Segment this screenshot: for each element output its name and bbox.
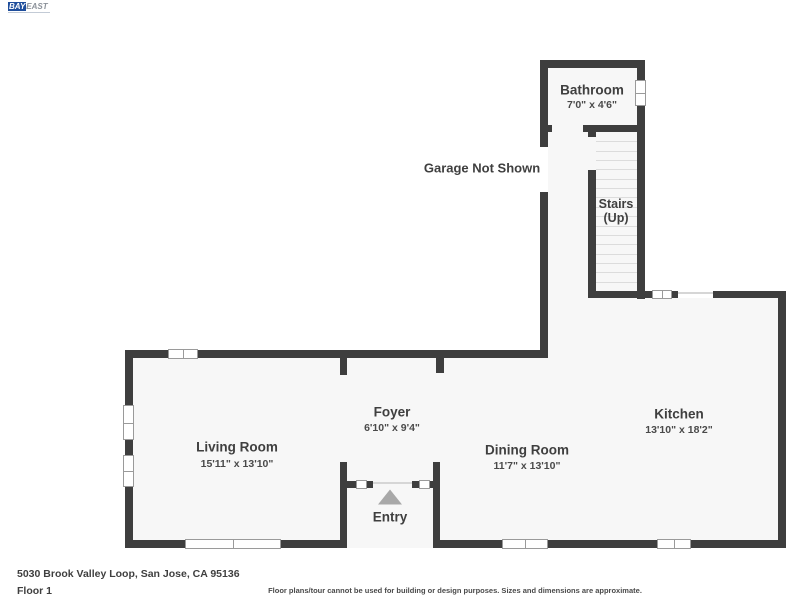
dining-south-window: [502, 539, 548, 549]
main-bottom-wall-right: [433, 540, 786, 548]
foyer-dims: 6'10" x 9'4": [364, 422, 420, 434]
kitchen-label: Kitchen: [654, 407, 704, 422]
bathroom-dims: 7'0" x 4'6": [567, 99, 617, 111]
foyer-west-wall-lower: [340, 462, 347, 548]
top-wall-window: [168, 349, 198, 359]
bathroom-top-wall: [540, 60, 645, 68]
kitchen-dims: 13'10" x 18'2": [645, 424, 713, 436]
foyer-west-wall-upper: [340, 358, 347, 375]
logo-east-text: EAST: [26, 2, 47, 11]
property-address: 5030 Brook Valley Loop, San Jose, CA 951…: [17, 568, 240, 580]
stairs-left-wall: [588, 170, 596, 298]
living-room-label: Living Room: [196, 440, 278, 455]
stairs-label-line1: Stairs: [599, 197, 634, 211]
tower-left-wall-upper: [540, 60, 548, 147]
disclaimer-text: Floor plans/tour cannot be used for buil…: [268, 586, 642, 595]
floor-plan-page: BAYEAST Bathroom 7'0" x 4'6" Garag: [0, 0, 787, 600]
living-room-dims: 15'11" x 13'10": [201, 458, 274, 470]
living-south-window: [185, 539, 281, 549]
kitchen-north-window: [652, 290, 672, 299]
main-left-wall: [125, 350, 133, 548]
kitchen-south-window: [657, 539, 691, 549]
entry-door-wall-a: [347, 481, 356, 488]
logo-rule: [8, 12, 50, 13]
garage-note: Garage Not Shown: [424, 161, 540, 176]
entry-label: Entry: [373, 510, 408, 525]
stairs-left-wall-stub: [588, 125, 596, 137]
entry-door-wall-c: [412, 481, 419, 488]
entry-arrow-icon: [378, 490, 402, 505]
bathroom-window: [635, 80, 646, 106]
foyer-dining-stub-wall: [436, 358, 444, 373]
tower-left-wall-lower: [540, 192, 548, 358]
foyer-label: Foyer: [374, 405, 411, 420]
living-west-window-2: [123, 455, 134, 487]
front-door-threshold: [373, 482, 412, 484]
living-west-window-1: [123, 405, 134, 440]
kitchen-right-wall: [778, 291, 786, 548]
dining-room-dims: 11'7" x 13'10": [494, 460, 561, 472]
bayeast-logo: BAYEAST: [8, 2, 48, 11]
bathroom-bottom-wall-left: [540, 125, 552, 132]
logo-bay-text: BAY: [8, 2, 26, 11]
kitchen-opening-threshold: [678, 292, 713, 294]
entry-east-wall: [433, 462, 440, 548]
dining-room-label: Dining Room: [485, 443, 569, 458]
kitchen-top-wall-right: [713, 291, 786, 298]
bathroom-label: Bathroom: [560, 83, 624, 98]
entry-sidelight-right: [419, 480, 430, 489]
entry-sidelight-left: [356, 480, 367, 489]
stairs-bottom-wall: [588, 291, 653, 298]
entry-door-wall-d: [430, 481, 440, 488]
stairs-label-line2: (Up): [604, 211, 629, 225]
floor-number: Floor 1: [17, 585, 52, 597]
